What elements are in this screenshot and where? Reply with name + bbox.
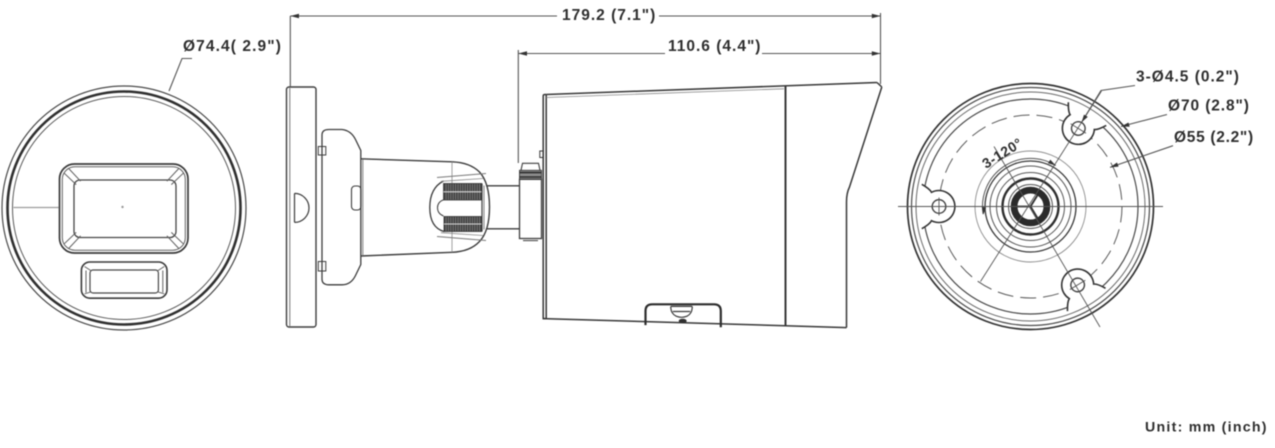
svg-text:3-Ø4.5 (0.2"): 3-Ø4.5 (0.2") (1136, 69, 1240, 86)
svg-text:3-120°: 3-120° (979, 134, 1025, 171)
svg-text:Unit: mm (inch): Unit: mm (inch) (1145, 420, 1268, 436)
svg-text:Ø70 (2.8"): Ø70 (2.8") (1168, 98, 1250, 115)
svg-text:179.2 (7.1"): 179.2 (7.1") (562, 7, 656, 24)
svg-text:110.6 (4.4"): 110.6 (4.4") (668, 38, 761, 55)
svg-text:Ø55 (2.2"): Ø55 (2.2") (1174, 129, 1254, 146)
svg-text:Ø74.4( 2.9"): Ø74.4( 2.9") (183, 38, 282, 55)
